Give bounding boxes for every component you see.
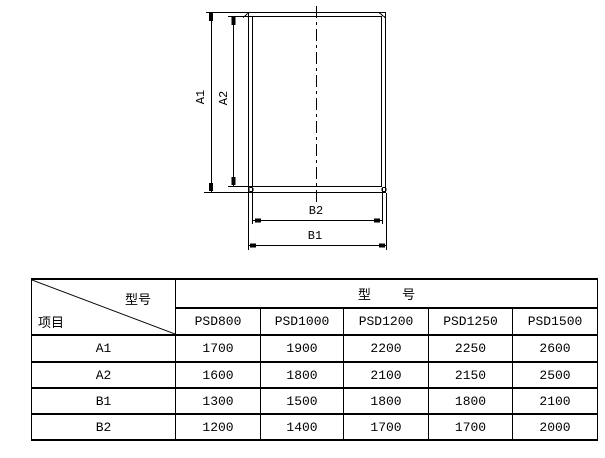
table-cell: 1200: [176, 414, 261, 440]
corner-label-model: 型号: [125, 289, 151, 308]
table-row: B2 1200 1400 1700 1700 2000: [32, 414, 598, 440]
table-cell: 1900: [261, 335, 344, 362]
tick-a2-bottom: [232, 177, 236, 185]
tick-a1-top: [209, 13, 213, 21]
tick-b2-right: [374, 219, 380, 223]
tick-a1-bottom: [209, 183, 213, 191]
table-cell: 2100: [344, 362, 429, 388]
table-cell: 1700: [344, 414, 429, 440]
table-cell: 2150: [429, 362, 513, 388]
tick-b2-left: [255, 219, 261, 223]
tick-b1-right: [379, 244, 385, 248]
table-cell: 1500: [261, 388, 344, 414]
table-cell: 2200: [344, 335, 429, 362]
table-cell: 2600: [513, 335, 598, 362]
table-row: A2 1600 1800 2100 2150 2500: [32, 362, 598, 388]
label-b1: B1: [308, 229, 322, 243]
table-cell: 2250: [429, 335, 513, 362]
table-cell: 1400: [261, 414, 344, 440]
column-header: PSD1000: [261, 308, 344, 335]
row-label: B1: [32, 388, 176, 414]
drawing-sheet: A1 A2 B2 B1 型号 项目 型 号 PSD800 PSD1000 PSD…: [0, 0, 605, 458]
table-cell: 1700: [429, 414, 513, 440]
table-cell: 1300: [176, 388, 261, 414]
group-header-model: 型 号: [176, 279, 598, 308]
tick-a2-top: [232, 17, 236, 25]
label-a1: A1: [194, 90, 208, 104]
column-header: PSD1200: [344, 308, 429, 335]
table-cell: 2100: [513, 388, 598, 414]
row-label: B2: [32, 414, 176, 440]
corner-header-cell: 型号 项目: [32, 279, 176, 335]
row-label: A2: [32, 362, 176, 388]
tick-b1-left: [250, 244, 256, 248]
corner-label-item: 项目: [38, 312, 64, 331]
table-cell: 1800: [344, 388, 429, 414]
table-cell: 2500: [513, 362, 598, 388]
column-header: PSD800: [176, 308, 261, 335]
label-b2: B2: [309, 204, 323, 218]
spec-table: 型号 项目 型 号 PSD800 PSD1000 PSD1200 PSD1250…: [31, 278, 598, 441]
table-cell: 2000: [513, 414, 598, 440]
table-cell: 1700: [176, 335, 261, 362]
label-a2: A2: [217, 91, 231, 105]
table-row: B1 1300 1500 1800 1800 2100: [32, 388, 598, 414]
table-row: A1 1700 1900 2200 2250 2600: [32, 335, 598, 362]
table-cell: 1800: [261, 362, 344, 388]
table-cell: 1600: [176, 362, 261, 388]
row-label: A1: [32, 335, 176, 362]
table-cell: 1800: [429, 388, 513, 414]
column-header: PSD1500: [513, 308, 598, 335]
dimension-diagram: A1 A2 B2 B1: [0, 0, 605, 272]
column-header: PSD1250: [429, 308, 513, 335]
